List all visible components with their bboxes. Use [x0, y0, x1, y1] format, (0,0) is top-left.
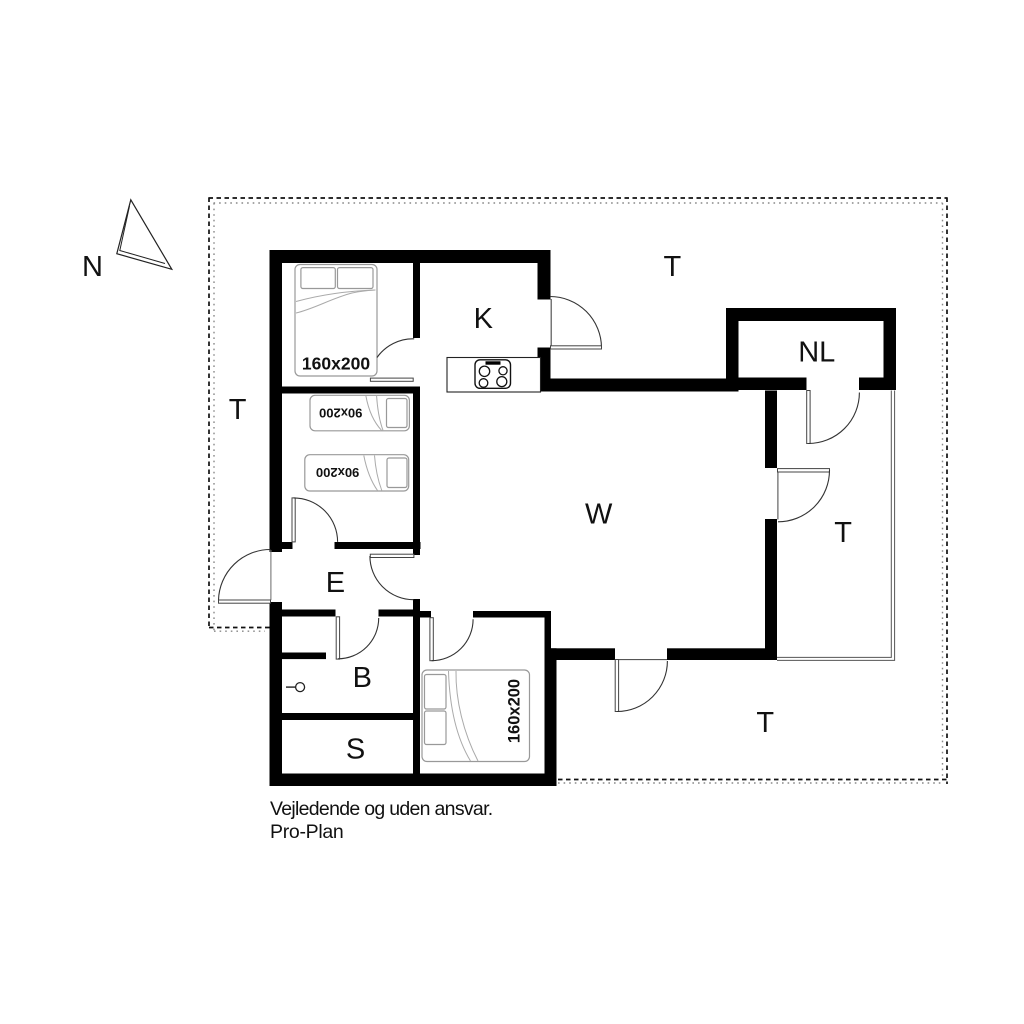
svg-text:160x200: 160x200: [506, 679, 524, 743]
svg-text:S: S: [346, 734, 365, 766]
svg-text:90x200: 90x200: [316, 465, 359, 480]
svg-text:N: N: [82, 251, 103, 283]
svg-text:B: B: [353, 662, 372, 694]
svg-text:K: K: [474, 303, 494, 335]
svg-text:Vejledende og uden ansvar.: Vejledende og uden ansvar.: [270, 798, 493, 820]
svg-text:Pro-Plan: Pro-Plan: [270, 821, 343, 843]
svg-text:160x200: 160x200: [302, 354, 370, 374]
svg-text:E: E: [326, 567, 345, 599]
svg-text:90x200: 90x200: [319, 406, 362, 421]
svg-text:T: T: [756, 707, 774, 739]
svg-text:T: T: [834, 517, 852, 549]
svg-text:T: T: [229, 394, 247, 426]
svg-text:NL: NL: [798, 337, 835, 369]
svg-text:T: T: [664, 251, 682, 283]
svg-text:W: W: [585, 499, 613, 531]
